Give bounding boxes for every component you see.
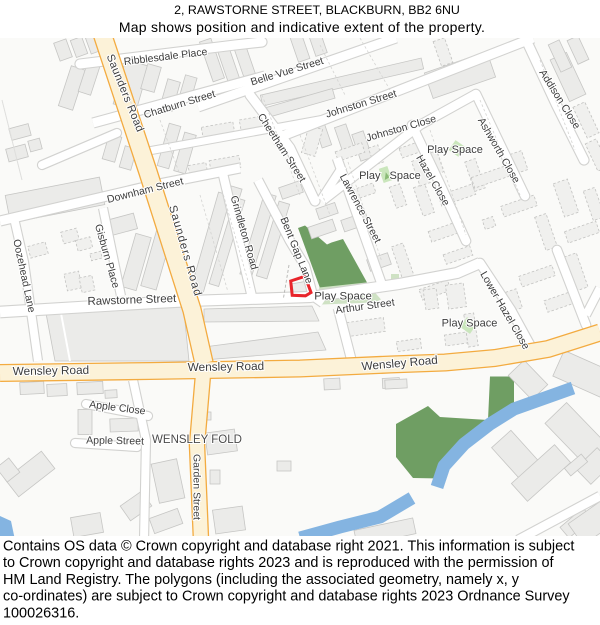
svg-text:HM Land Registry. The polygons: HM Land Registry. The polygons (includin… [3,572,520,588]
svg-text:Play Space: Play Space [442,318,498,330]
svg-text:Play Space: Play Space [314,291,372,303]
svg-text:to Crown copyright and databas: to Crown copyright and database rights 2… [3,555,555,571]
svg-text:Apple Street: Apple Street [86,434,144,447]
svg-text:Play: Play [359,170,381,182]
svg-text:100026316.: 100026316. [3,605,79,621]
svg-text:co-ordinates) are subject to C: co-ordinates) are subject to Crown copyr… [3,589,570,605]
svg-text:Garden Street: Garden Street [191,454,203,520]
svg-text:Space: Space [390,170,421,182]
svg-text:Contains OS data © Crown copyr: Contains OS data © Crown copyright and d… [3,539,574,555]
svg-text:Wensley Road: Wensley Road [188,359,265,374]
svg-text:2, RAWSTORNE STREET, BLACKBURN: 2, RAWSTORNE STREET, BLACKBURN, BB2 6NU [174,3,460,17]
svg-text:Map shows position and indicat: Map shows position and indicative extent… [119,19,485,35]
svg-text:Wensley Road: Wensley Road [13,363,90,378]
svg-text:Play Space: Play Space [427,144,483,156]
svg-text:WENSLEY FOLD: WENSLEY FOLD [152,434,242,446]
